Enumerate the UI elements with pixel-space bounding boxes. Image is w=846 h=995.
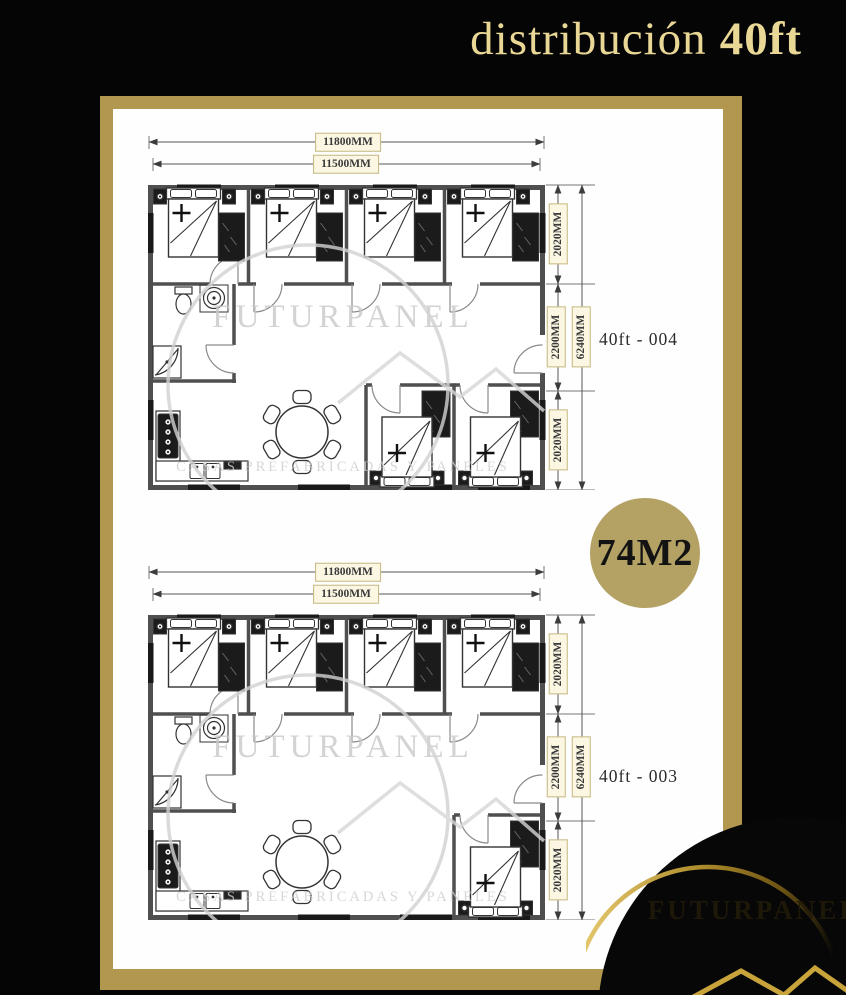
dim-front-depth: 2020MM bbox=[549, 634, 568, 695]
dim-overall-width: 11800MM bbox=[315, 133, 381, 152]
floor-plan-004: FUTURPANELCASAS PREFABRICADAS Y PANELES … bbox=[148, 134, 608, 490]
logo-brand-text: FUTURPANEL bbox=[648, 895, 846, 925]
area-badge: 74M2 bbox=[590, 498, 700, 608]
dim-front-depth: 2020MM bbox=[549, 204, 568, 265]
svg-text:FUTURPANEL: FUTURPANEL bbox=[212, 729, 474, 765]
page-title: distribución40ft bbox=[470, 12, 802, 66]
dim-back-depth: 2020MM bbox=[549, 410, 568, 471]
title-size-text: 40ft bbox=[720, 13, 802, 65]
dim-overall-width: 11800MM bbox=[315, 563, 381, 582]
floor-plan-drawing-004: FUTURPANELCASAS PREFABRICADAS Y PANELES bbox=[148, 134, 608, 490]
plan-label-004: 40ft - 004 bbox=[599, 329, 678, 350]
dim-middle-depth: 2200MM bbox=[547, 737, 566, 798]
floor-plan-drawing-003: FUTURPANELCASAS PREFABRICADAS Y PANELES bbox=[148, 564, 608, 920]
svg-text:CASAS PREFABRICADAS Y PANELES: CASAS PREFABRICADAS Y PANELES bbox=[176, 889, 510, 905]
title-text: distribución bbox=[470, 13, 707, 65]
dim-inner-width: 11500MM bbox=[313, 155, 379, 174]
plan-label-003: 40ft - 003 bbox=[599, 766, 678, 787]
dim-total-depth: 6240MM bbox=[572, 307, 591, 368]
floor-plan-003: FUTURPANELCASAS PREFABRICADAS Y PANELES … bbox=[148, 564, 608, 920]
svg-text:FUTURPANEL: FUTURPANEL bbox=[212, 299, 474, 335]
flyer-page: { "header": { "title_regular": "distribu… bbox=[0, 0, 846, 995]
dim-middle-depth: 2200MM bbox=[547, 307, 566, 368]
dim-back-depth: 2020MM bbox=[549, 840, 568, 901]
brand-logo: FUTURPANEL bbox=[586, 815, 846, 995]
dim-inner-width: 11500MM bbox=[313, 585, 379, 604]
svg-text:CASAS PREFABRICADAS Y PANELES: CASAS PREFABRICADAS Y PANELES bbox=[176, 459, 510, 475]
dim-total-depth: 6240MM bbox=[572, 737, 591, 798]
